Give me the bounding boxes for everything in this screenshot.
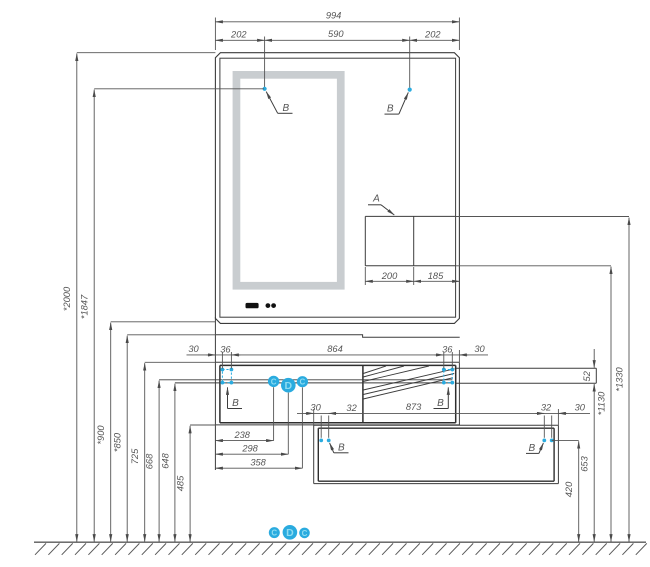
svg-text:B: B — [387, 104, 394, 115]
svg-text:C: C — [300, 378, 306, 387]
svg-text:653: 653 — [580, 455, 590, 471]
svg-text:420: 420 — [564, 481, 574, 497]
svg-text:*1330: *1330 — [615, 367, 625, 392]
svg-text:298: 298 — [241, 444, 258, 454]
svg-text:36: 36 — [442, 345, 453, 355]
svg-text:32: 32 — [541, 402, 552, 412]
svg-text:C: C — [271, 529, 277, 538]
svg-text:202: 202 — [230, 29, 247, 39]
svg-text:B: B — [232, 398, 239, 409]
svg-text:30: 30 — [474, 344, 485, 354]
svg-text:864: 864 — [327, 344, 343, 354]
svg-text:358: 358 — [250, 458, 266, 468]
svg-text:590: 590 — [328, 29, 344, 39]
svg-text:B: B — [528, 443, 535, 454]
svg-text:668: 668 — [145, 453, 155, 469]
svg-text:*2000: *2000 — [62, 286, 72, 311]
svg-text:*900: *900 — [96, 425, 106, 445]
svg-text:C: C — [271, 377, 277, 386]
svg-text:200: 200 — [381, 271, 398, 281]
svg-text:B: B — [282, 103, 289, 114]
svg-text:30: 30 — [575, 402, 586, 412]
svg-text:202: 202 — [424, 29, 441, 39]
svg-text:A: A — [372, 194, 380, 205]
svg-text:*850: *850 — [113, 432, 123, 452]
svg-text:873: 873 — [406, 402, 422, 412]
svg-text:238: 238 — [233, 430, 250, 440]
svg-text:32: 32 — [346, 403, 357, 413]
svg-text:648: 648 — [160, 452, 170, 468]
svg-text:B: B — [437, 398, 444, 409]
svg-text:*1130: *1130 — [597, 391, 607, 415]
svg-text:185: 185 — [428, 271, 444, 281]
svg-text:52: 52 — [582, 370, 592, 381]
svg-text:30: 30 — [310, 402, 321, 412]
svg-text:725: 725 — [130, 448, 140, 464]
svg-text:36: 36 — [220, 345, 231, 355]
svg-text:30: 30 — [188, 344, 199, 354]
svg-text:994: 994 — [326, 11, 342, 21]
svg-text:C: C — [302, 529, 308, 538]
svg-text:B: B — [338, 442, 345, 453]
svg-text:*1847: *1847 — [80, 294, 90, 319]
svg-text:485: 485 — [176, 475, 186, 491]
svg-text:D: D — [285, 380, 293, 392]
svg-text:D: D — [286, 527, 294, 539]
